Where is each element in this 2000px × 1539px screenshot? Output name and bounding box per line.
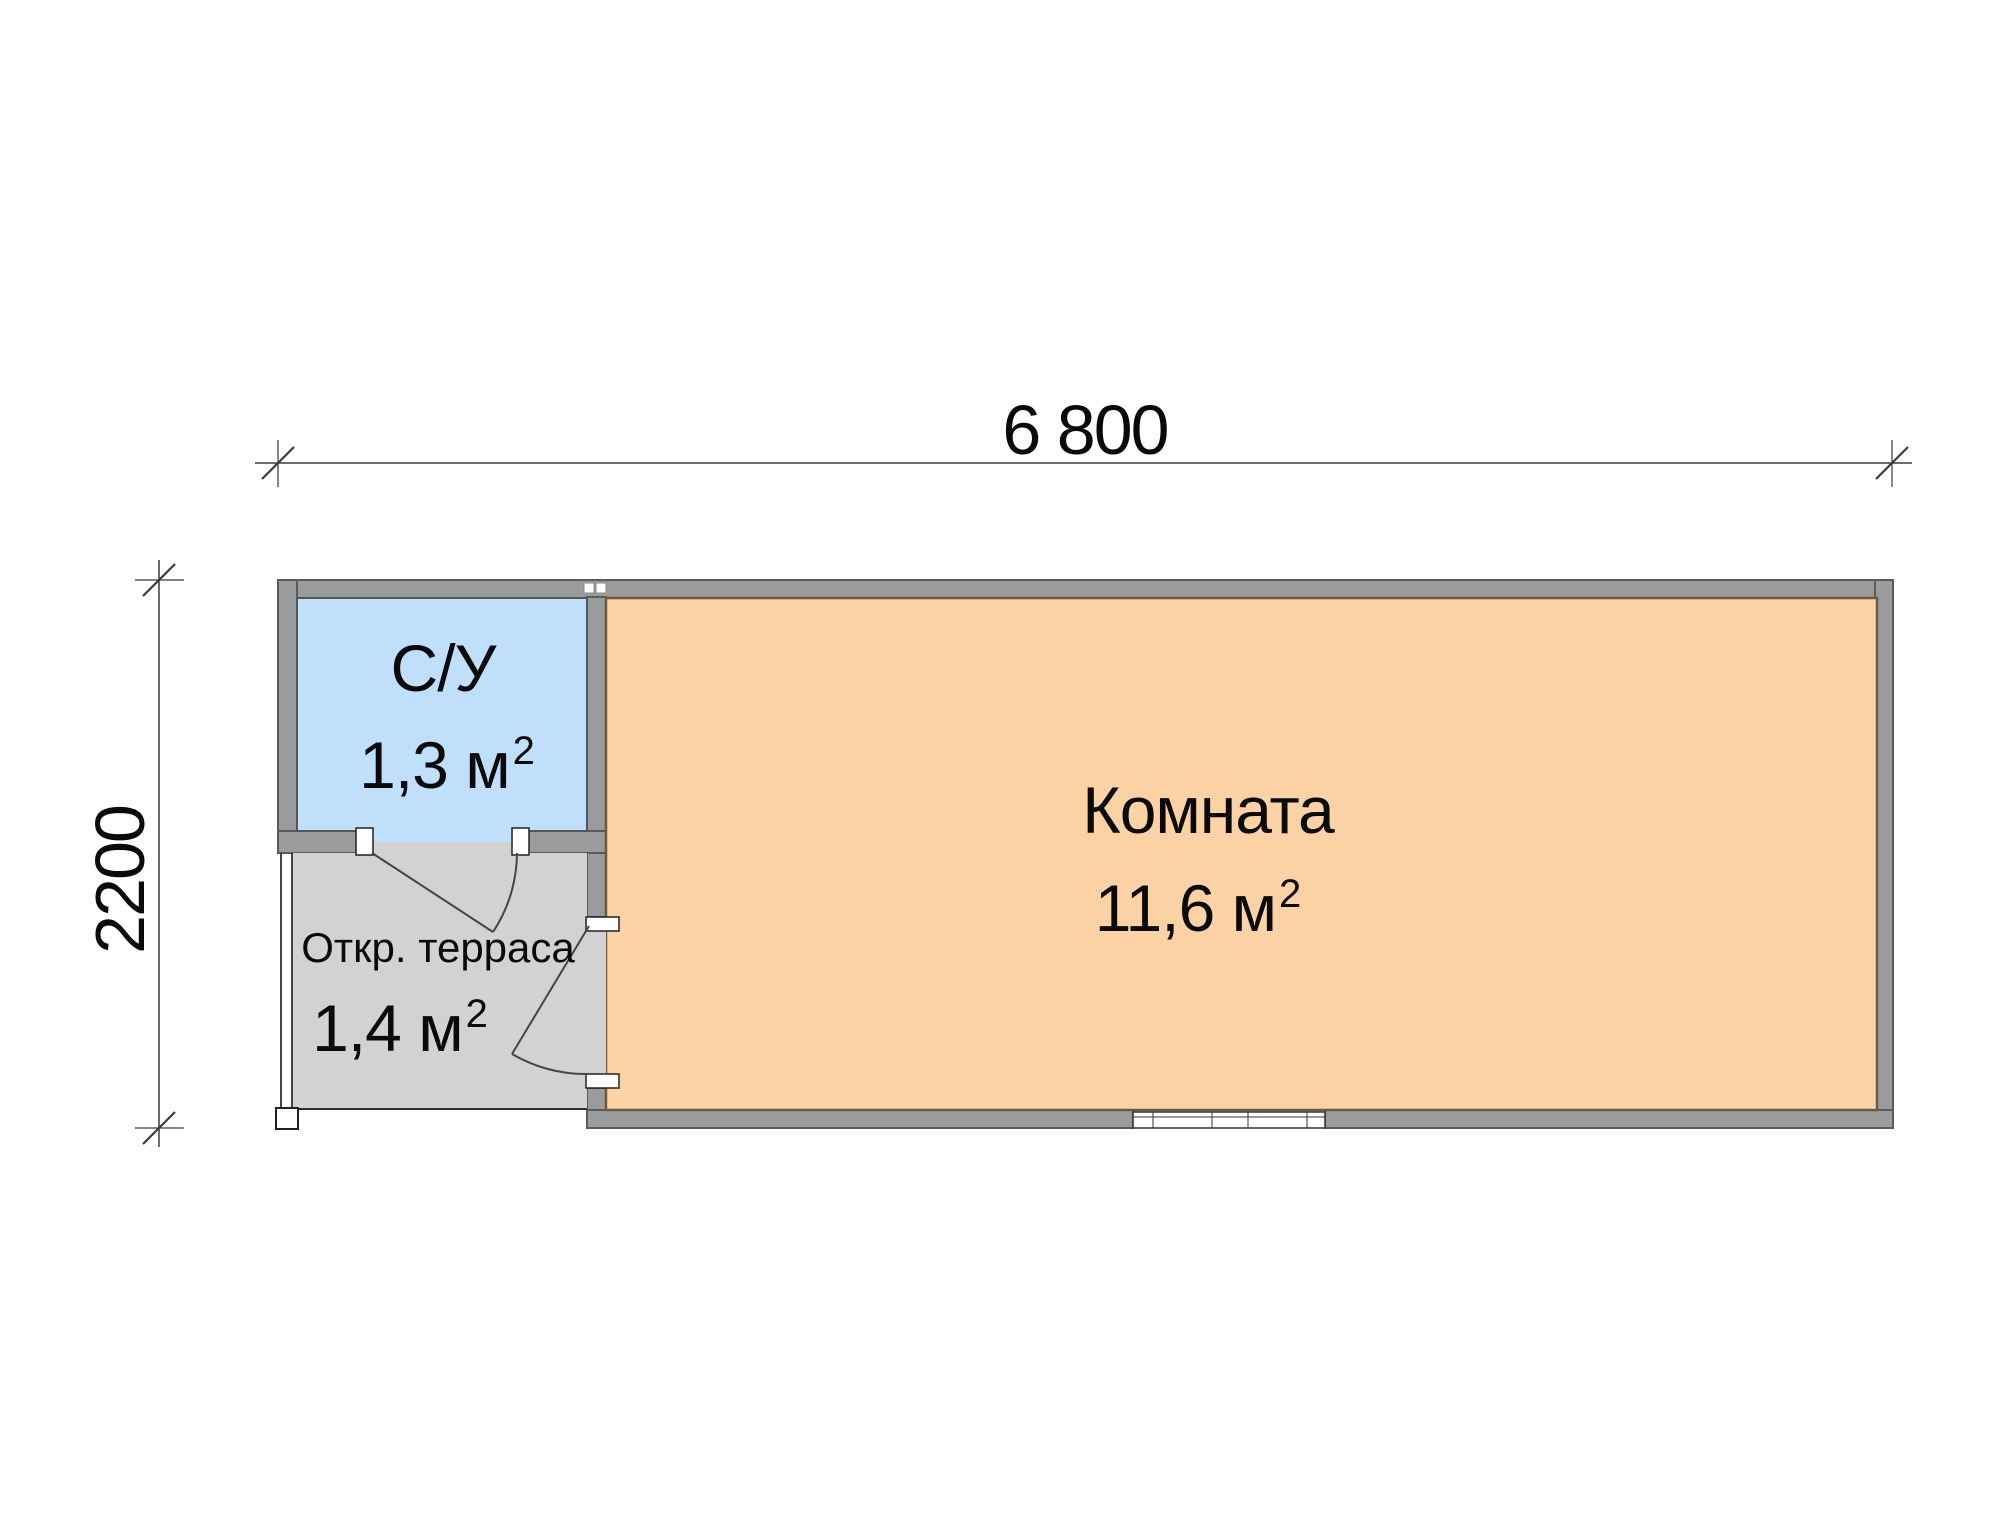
wall-bottom-left-of-window [587, 1110, 1133, 1128]
wall-divider-lower [587, 1088, 606, 1110]
bathroom-door-gap-threshold [373, 842, 512, 853]
bathroom-door-gap [373, 830, 512, 842]
room-area-sup: 2 [1279, 872, 1301, 916]
room-name-label: Комната [1082, 777, 1333, 843]
wall-left [278, 580, 297, 853]
terrace-name-label: Откр. терраса [301, 927, 575, 969]
terrace-floor [293, 853, 587, 1110]
bathroom-area-label: 1,3 м2 [359, 732, 535, 798]
dimension-width-label: 6 800 [1002, 395, 1167, 465]
wall-divider-upper [587, 597, 606, 831]
terrace-post [276, 1108, 298, 1129]
terrace-area-value: 1,4 м [312, 991, 462, 1065]
room-floor [606, 598, 1877, 1110]
bathroom-area-value: 1,3 м [359, 728, 509, 802]
bathroom-door-jamb-left [356, 828, 373, 855]
floor-plan: 6 800 2200 С/У 1,3 м2 Откр. терраса 1,4 … [0, 0, 2000, 1539]
bathroom-door-jamb-right [512, 828, 529, 855]
dimension-height-label: 2200 [85, 806, 155, 954]
room-door-jamb-top [586, 917, 619, 931]
wall-bathroom-bottom-right [525, 831, 606, 853]
wall-divider-mid [587, 853, 606, 917]
window [1133, 1112, 1325, 1128]
room-area-label: 11,6 м2 [1095, 875, 1302, 941]
terrace-area-label: 1,4 м2 [312, 995, 488, 1061]
terrace-area-sup: 2 [466, 992, 488, 1036]
wall-bathroom-bottom-left [278, 831, 358, 853]
room-door-gap [587, 931, 606, 1074]
window-frame [1133, 1112, 1325, 1128]
wall-top [278, 580, 1893, 598]
bathroom-area-sup: 2 [513, 729, 535, 773]
wall-bottom-right-of-window [1325, 1110, 1893, 1128]
bathroom-name-label: С/У [391, 635, 496, 701]
floor-plan-drawing [0, 0, 2000, 1539]
room-area-value: 11,6 м [1095, 871, 1276, 945]
room-door-jamb-bottom [586, 1074, 619, 1088]
